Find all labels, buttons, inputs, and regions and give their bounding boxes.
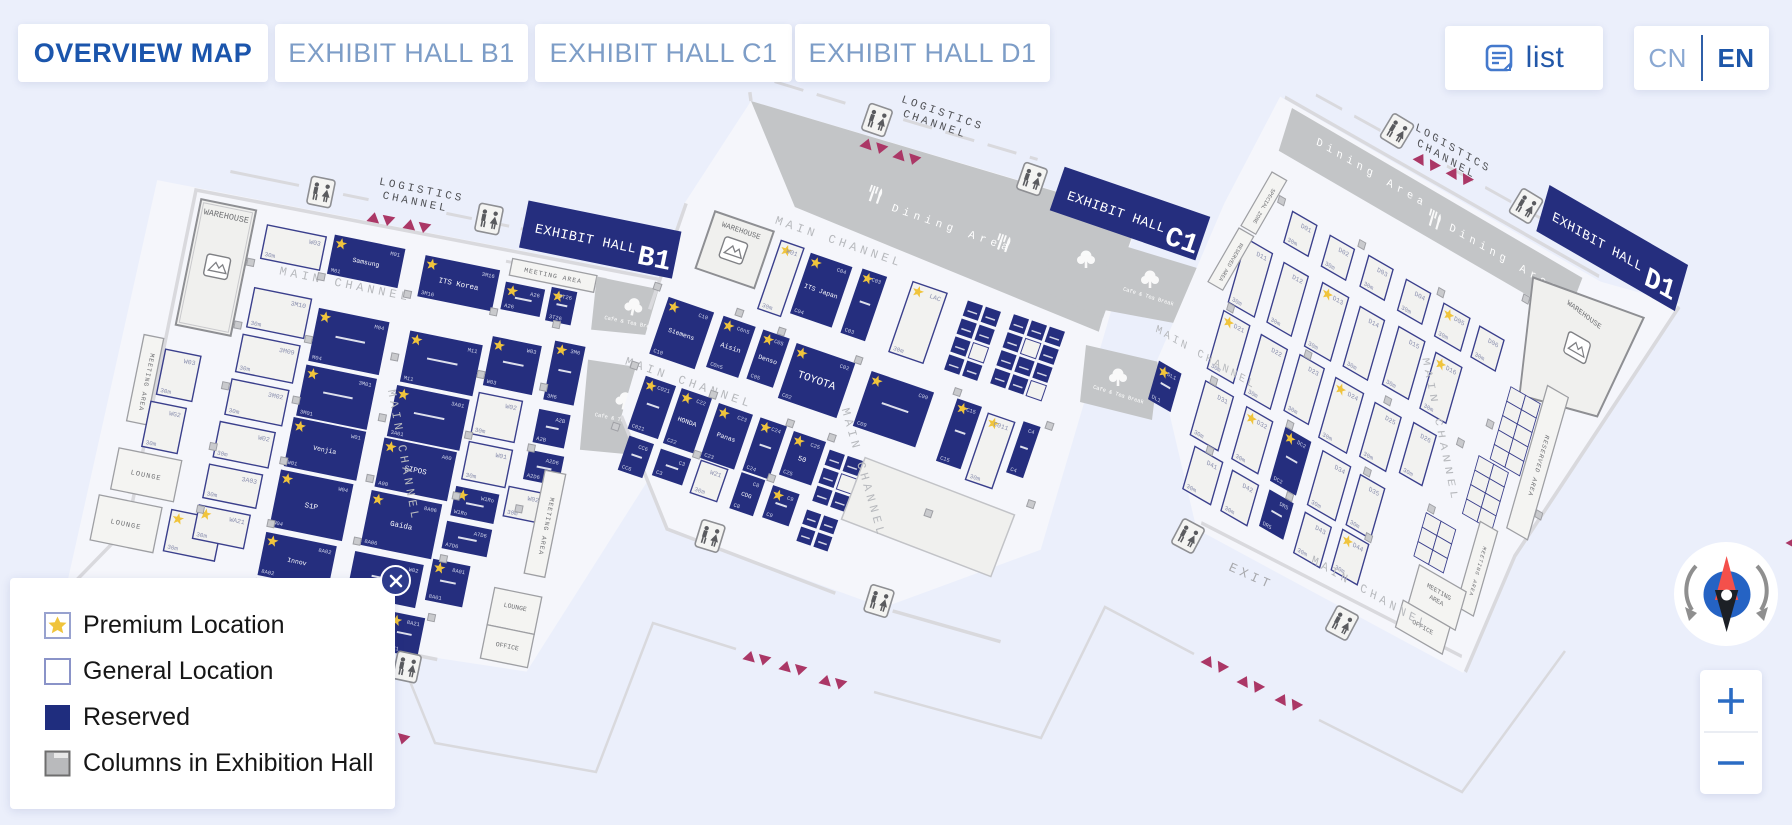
svg-text:B1: B1 xyxy=(634,242,673,279)
